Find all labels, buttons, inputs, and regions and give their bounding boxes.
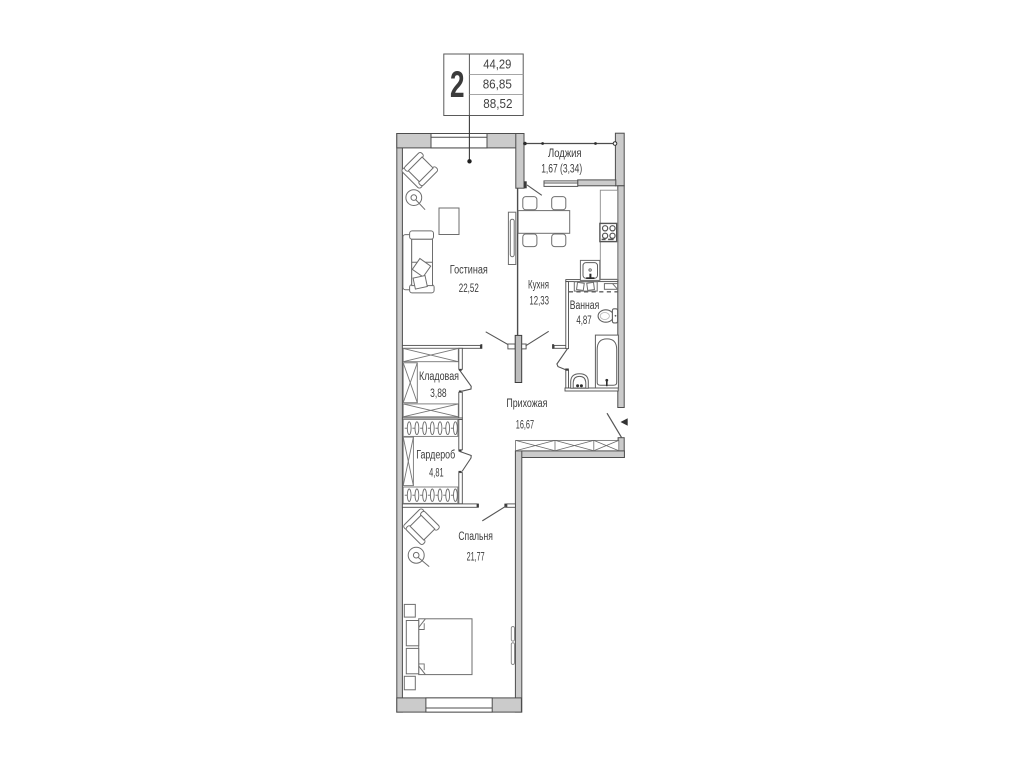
svg-text:16,67: 16,67 (516, 420, 534, 432)
svg-text:Прихожая: Прихожая (506, 398, 547, 410)
svg-text:Спальня: Спальня (458, 531, 493, 543)
svg-text:3,88: 3,88 (430, 388, 447, 400)
svg-text:Гардероб: Гардероб (416, 449, 455, 461)
svg-text:86,85: 86,85 (483, 77, 512, 92)
svg-text:Ванная: Ванная (570, 300, 600, 312)
svg-text:Кладовая: Кладовая (419, 371, 459, 383)
svg-text:1,67 (3,34): 1,67 (3,34) (541, 163, 582, 175)
svg-text:4,87: 4,87 (576, 315, 591, 327)
svg-text:12,33: 12,33 (529, 296, 549, 308)
svg-text:4,81: 4,81 (429, 468, 444, 480)
svg-text:22,52: 22,52 (459, 283, 479, 295)
svg-text:Гостиная: Гостиная (450, 264, 488, 276)
svg-text:44,29: 44,29 (483, 57, 511, 72)
svg-text:21,77: 21,77 (467, 552, 485, 564)
svg-text:Кухня: Кухня (528, 279, 549, 291)
svg-text:88,52: 88,52 (483, 96, 512, 111)
svg-text:2: 2 (450, 64, 465, 105)
svg-text:Лоджия: Лоджия (548, 148, 582, 160)
